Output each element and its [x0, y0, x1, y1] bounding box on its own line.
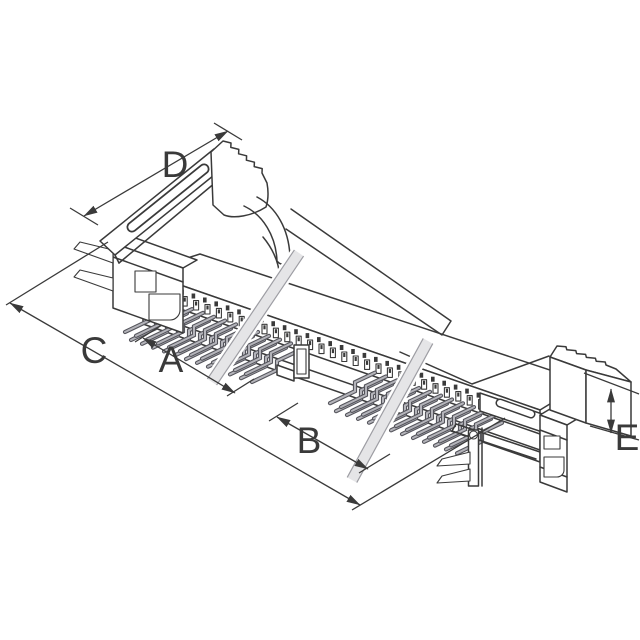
contact-slot-tick — [275, 329, 277, 333]
contact-slot-tick — [457, 393, 459, 397]
contact-slot-tick — [206, 306, 208, 310]
contact-slot-upper — [214, 301, 218, 306]
contact-slot-tick — [320, 345, 322, 349]
contact-slot-upper — [340, 345, 344, 350]
contact-slot-upper — [237, 309, 241, 314]
contact-slot-tick — [218, 309, 220, 313]
contact-slot-upper — [431, 377, 435, 382]
left-block-cutout-1 — [135, 271, 156, 292]
key-post-inner — [297, 349, 306, 374]
contact-slot-upper — [203, 298, 207, 303]
dimension-b-extension-1 — [269, 403, 298, 421]
contact-slot-tick — [377, 365, 379, 369]
contact-slot-tick — [286, 333, 288, 337]
contact-slot-tick — [195, 302, 197, 306]
contact-slot-upper — [454, 385, 458, 390]
contact-slot-upper — [351, 349, 355, 354]
dimension-a-extension-2 — [227, 379, 254, 396]
dimension-e-label: E — [615, 417, 640, 458]
right-block-cutout-2 — [544, 457, 564, 477]
contact-slot-tick — [298, 337, 300, 341]
right-board-lock-prong-1 — [437, 452, 470, 466]
dimension-b-label: B — [297, 420, 322, 461]
contact-slot-tick — [332, 349, 334, 353]
right-block-cutout-1 — [544, 436, 560, 449]
contact-slot-upper — [283, 325, 287, 330]
contact-slot-upper — [465, 389, 469, 394]
contact-slot-tick — [423, 381, 425, 385]
contact-slot-upper — [271, 321, 275, 326]
contact-slot-upper — [385, 361, 389, 366]
left-thumb-grip-serrated — [211, 141, 268, 217]
contact-slot-tick — [229, 313, 231, 317]
contact-slot-upper — [294, 329, 298, 334]
connector-technical-drawing: D C A B E — [0, 0, 640, 640]
contact-slot-upper — [442, 381, 446, 386]
contact-slot-tick — [343, 353, 345, 357]
left-board-lock-prong-2 — [74, 270, 113, 291]
contact-slot-tick — [366, 361, 368, 365]
contact-slot-tick — [434, 385, 436, 389]
dimension-c-label: C — [81, 330, 108, 371]
contact-slot-upper — [374, 357, 378, 362]
contact-slot-upper — [317, 337, 321, 342]
dimension-d-label: D — [162, 144, 189, 185]
contact-slot-upper — [420, 373, 424, 378]
right-block-front — [540, 415, 567, 492]
contact-slot-tick — [469, 397, 471, 401]
contact-slot-tick — [446, 389, 448, 393]
contact-slot-upper — [328, 341, 332, 346]
contact-slot-upper — [306, 333, 310, 338]
technical-drawing-page: D C A B E — [0, 0, 640, 640]
contact-slot-upper — [363, 353, 367, 358]
contact-slot-upper — [192, 294, 196, 299]
dimension-b-line — [277, 417, 368, 469]
contact-slot-tick — [355, 357, 357, 361]
contact-slot-tick — [389, 369, 391, 373]
contact-slot-tick — [241, 317, 243, 321]
right-board-lock-prong-2 — [437, 469, 470, 483]
contact-slot-upper — [226, 305, 230, 310]
dimension-a-label: A — [159, 339, 184, 380]
left-block-cutout-2 — [149, 294, 180, 320]
contact-slot-tick — [184, 298, 186, 302]
contact-slot-upper — [397, 365, 401, 370]
contact-slot-tick — [263, 325, 265, 329]
